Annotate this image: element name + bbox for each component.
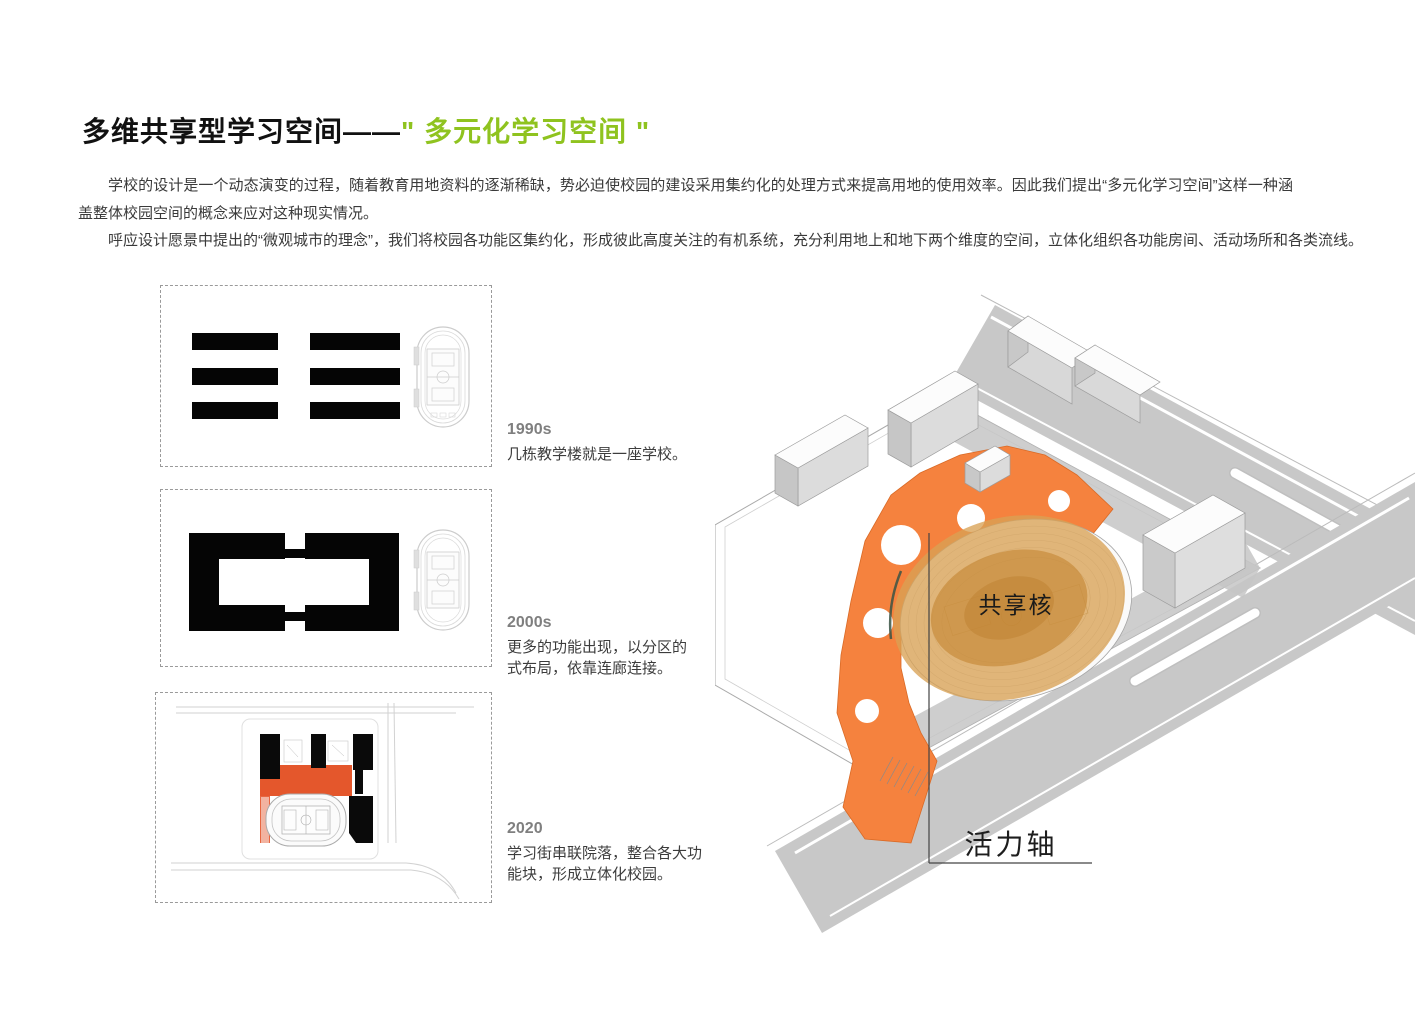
timeline-year-2000s: 2000s <box>507 614 552 632</box>
timeline-year-2020: 2020 <box>507 820 543 838</box>
diagram-1990s-box <box>160 285 492 467</box>
page-title-main: 多维共享型学习空间—— <box>82 116 401 147</box>
mini-running-track <box>266 794 346 846</box>
courtyard-cutout <box>855 699 879 723</box>
courtyard-blocks <box>189 533 399 631</box>
diagram-1990s-graphic <box>161 286 491 466</box>
timeline-desc-2000s: 更多的功能出现，以分区的式布局，依靠连廊连接。 <box>507 637 690 679</box>
mini-site-plan <box>156 693 491 902</box>
site-axon-illustration: 共享核 活力轴 <box>715 283 1415 943</box>
page-title: 多维共享型学习空间——" 多元化学习空间 " <box>82 110 650 150</box>
intro-paragraph-2: 呼应设计愿景中提出的“微观城市的理念”，我们将校园各功能区集约化，形成彼此高度关… <box>78 227 1378 255</box>
core-label: 共享核 <box>979 592 1054 618</box>
timeline-year-1990s: 1990s <box>507 421 552 439</box>
running-track-icon <box>414 327 469 427</box>
axis-label: 活力轴 <box>964 829 1057 860</box>
diagram-2000s-box <box>160 489 492 667</box>
classroom-bars <box>192 333 400 419</box>
courtyard-cutout <box>881 525 921 565</box>
intro-paragraph-1: 学校的设计是一个动态演变的过程，随着教育用地资料的逐渐稀缺，势必迫使校园的建设采… <box>78 172 1293 228</box>
courtyard-cutout <box>863 608 893 638</box>
timeline-desc-2020: 学习街串联院落，整合各大功能块，形成立体化校园。 <box>507 843 707 885</box>
page-title-accent: " 多元化学习空间 " <box>401 116 650 147</box>
courtyard-cutout <box>1048 490 1070 512</box>
diagram-2000s-graphic <box>161 490 491 666</box>
timeline-desc-1990s: 几栋教学楼就是一座学校。 <box>507 444 727 465</box>
presentation-page: { "header": { "title_black": "多维共享型学习空间—… <box>0 0 1428 1010</box>
diagram-2020-box <box>155 692 492 903</box>
running-track-icon <box>414 530 469 630</box>
